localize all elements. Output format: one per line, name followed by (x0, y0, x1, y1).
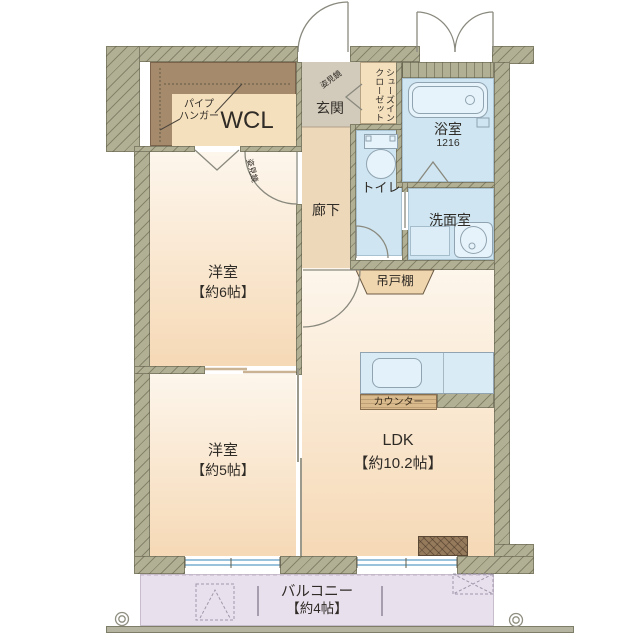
folding-door-bathroom (418, 162, 448, 182)
balcony-size-label: 【約4帖】 (140, 601, 494, 617)
toilet-tank-detail (366, 136, 371, 141)
floor-plan: WCL パイプ ハンガー 玄関 姿見鏡 シューズインクローゼット 浴室 1216… (0, 0, 640, 639)
ldk-size-label: 【約10.2帖】 (302, 455, 494, 472)
door-arc-entrance (298, 2, 348, 52)
toilet-tank-detail (390, 136, 395, 141)
hanging-cupboard-label: 吊戸棚 (356, 274, 434, 288)
folding-door-wcl (195, 150, 239, 170)
toilet-label: トイレ (352, 181, 410, 196)
hallway-label: 廊下 (299, 202, 353, 218)
bedroom5-size-label: 【約5帖】 (150, 462, 296, 478)
shoe-closet-label: シューズインクローゼット (363, 66, 395, 123)
entrance-label: 玄関 (302, 100, 358, 116)
bathroom-size-label: 1216 (402, 137, 494, 149)
drain-pipe (119, 616, 125, 622)
washbasin-drain (469, 243, 475, 249)
washroom-label: 洗面室 (404, 212, 496, 228)
bedroom6-size-label: 【約6帖】 (150, 284, 296, 300)
drain-pipe (513, 617, 519, 623)
bathroom-label: 浴室 (402, 121, 494, 137)
bedroom5-label: 洋室 (150, 442, 296, 459)
door-arc-toilet (356, 226, 388, 258)
ldk-label: LDK (302, 432, 494, 450)
pipe-hanger-label: パイプ ハンガー (166, 99, 232, 122)
plan-overlay (0, 0, 640, 639)
door-arc-ldk (303, 270, 360, 327)
double-door-arc-right (455, 12, 493, 52)
counter-label: カウンター (360, 397, 437, 409)
bedroom6-label: 洋室 (150, 264, 296, 281)
double-door-arc-left (417, 12, 455, 52)
balcony-label: バルコニー (140, 584, 494, 601)
bathtub-drain (466, 96, 475, 105)
